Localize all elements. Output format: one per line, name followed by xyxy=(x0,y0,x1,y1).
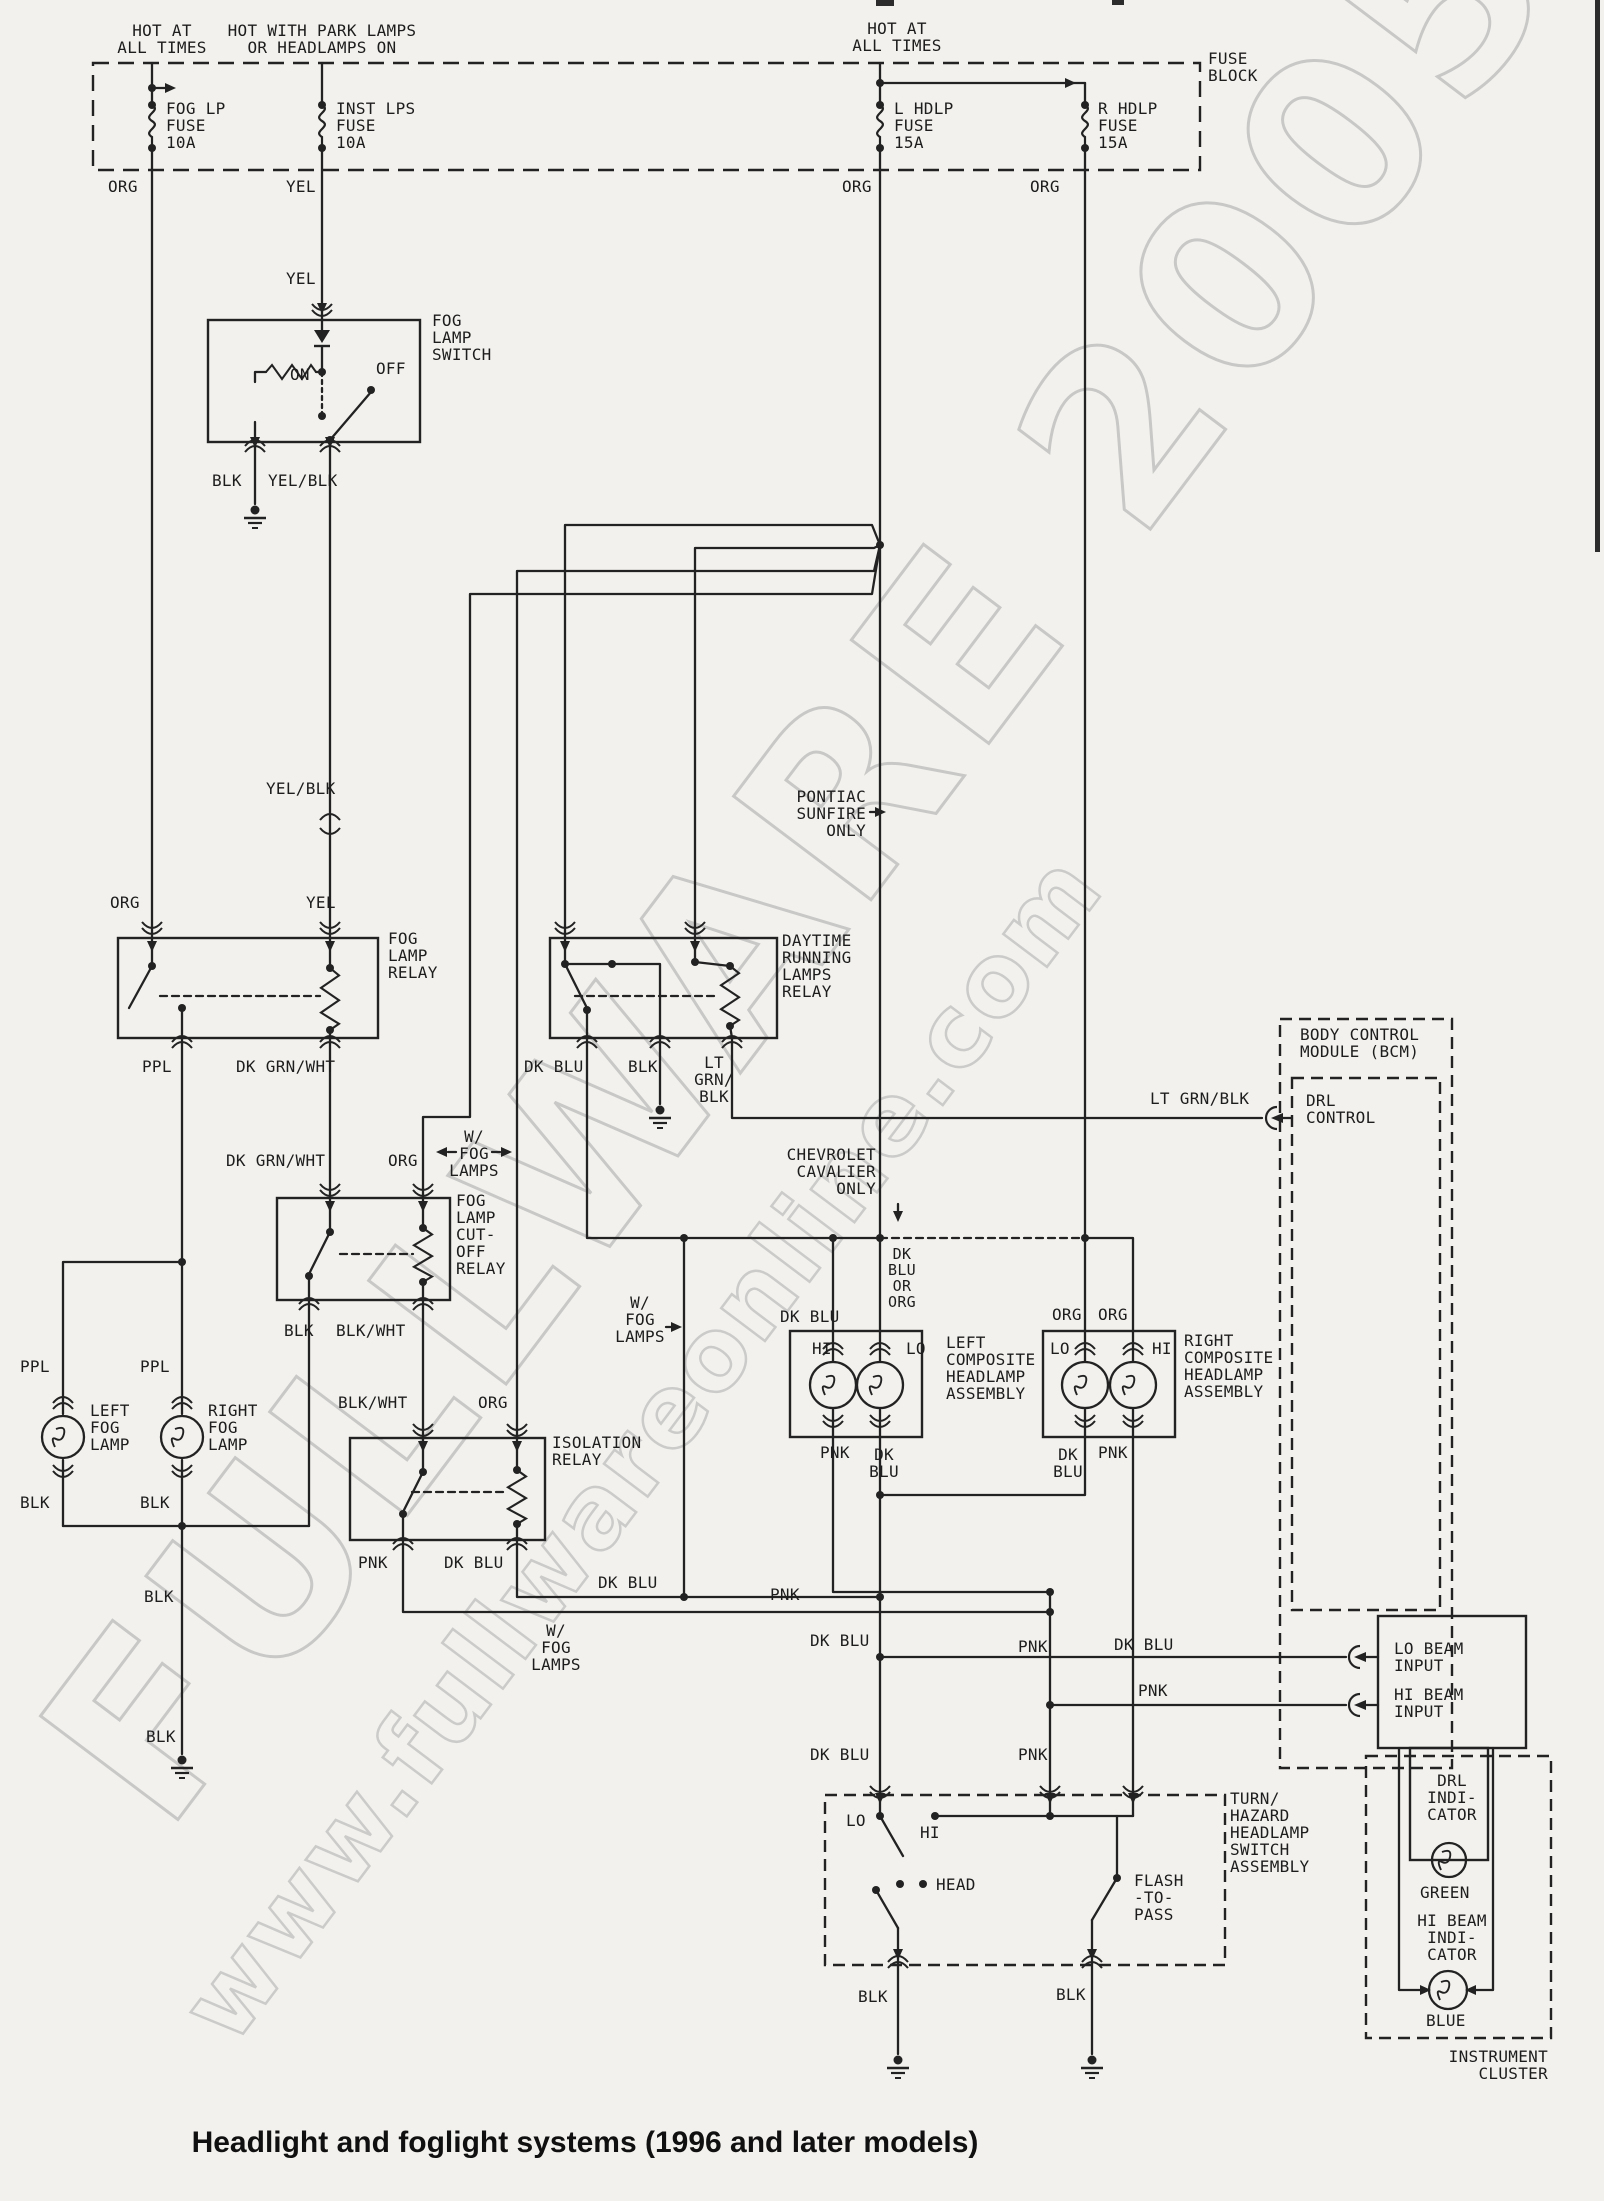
diagram-label: HI xyxy=(1152,1340,1172,1357)
diagram-label: YEL/BLK xyxy=(266,780,336,797)
diagram-label: ORG xyxy=(842,178,872,195)
junction-dot xyxy=(608,960,616,968)
diagram-label: ORG xyxy=(108,178,138,195)
diagram-label: DK BLU xyxy=(810,1746,870,1763)
arrowhead xyxy=(893,1211,903,1222)
wire xyxy=(833,1408,1050,1592)
diagram-label: LO xyxy=(1050,1340,1070,1357)
arrowhead xyxy=(690,941,700,952)
junction-dot xyxy=(1046,1588,1054,1596)
junction-dot xyxy=(876,1234,884,1242)
fuse-icon xyxy=(877,105,883,148)
junction-dot xyxy=(178,1522,186,1530)
diagram-label: BLUE xyxy=(1426,2012,1466,2029)
diagram-label: DRL INDI- CATOR xyxy=(1342,1772,1562,1823)
diagram-label: HOT AT ALL TIMES xyxy=(787,20,1007,54)
ground-icon xyxy=(656,1106,665,1115)
junction-dot xyxy=(876,79,884,87)
diagram-label: FOG LAMP RELAY xyxy=(388,930,438,981)
diagram-label: TURN/ HAZARD HEADLAMP SWITCH ASSEMBLY xyxy=(1230,1790,1309,1876)
diagram-label: HI xyxy=(812,1340,832,1357)
diagram-label: DK BLU xyxy=(780,1308,840,1325)
junction-dot xyxy=(1046,1701,1054,1709)
diagram-label: BLK xyxy=(212,472,242,489)
arrowhead xyxy=(418,1441,428,1452)
junction-dot xyxy=(876,1593,884,1601)
diagram-label: HEAD xyxy=(936,1876,976,1893)
arrowhead xyxy=(560,941,570,952)
junction-dot xyxy=(876,541,884,549)
relay-coil-icon xyxy=(414,1228,432,1282)
diagram-label: DRL CONTROL xyxy=(1306,1092,1376,1126)
ground-icon xyxy=(1088,2056,1097,2065)
wire xyxy=(695,545,880,938)
diagram-label: BLK xyxy=(144,1588,174,1605)
junction-dot xyxy=(876,1491,884,1499)
diagram-label: OFF xyxy=(376,360,406,377)
diagram-label: DK BLU xyxy=(1114,1636,1174,1653)
diagram-label: DK BLU xyxy=(444,1554,504,1571)
diagram-label: DK BLU xyxy=(524,1058,584,1075)
diagram-label: PNK xyxy=(358,1554,388,1571)
connector-icon xyxy=(1271,1113,1283,1123)
diagram-label: CHEVROLET CAVALIER ONLY xyxy=(656,1146,876,1197)
wire xyxy=(129,966,152,1008)
diagram-label: BLK xyxy=(20,1494,50,1511)
wire xyxy=(695,938,730,966)
junction-dot xyxy=(326,1228,334,1236)
junction-dot xyxy=(1113,1874,1121,1882)
diagram-label: PPL xyxy=(142,1058,172,1075)
wire xyxy=(255,372,266,382)
arrowhead xyxy=(418,1201,428,1212)
junction-dot xyxy=(583,1006,591,1014)
diagram-label: LT GRN/BLK xyxy=(1150,1090,1249,1107)
diagram-label: DAYTIME RUNNING LAMPS RELAY xyxy=(782,932,852,1000)
junction-dot xyxy=(305,1272,313,1280)
junction-dot xyxy=(148,84,156,92)
diode-icon xyxy=(314,330,330,343)
diagram-label: ORG xyxy=(478,1394,508,1411)
diagram-label: GREEN xyxy=(1420,1884,1470,1901)
diagram-label: FOG LAMP CUT- OFF RELAY xyxy=(456,1192,506,1278)
diagram-label: LO xyxy=(906,1340,926,1357)
junction-dot xyxy=(876,1653,884,1661)
diagram-label: L HDLP FUSE 15A xyxy=(894,100,954,151)
diagram-label: W/ FOG LAMPS xyxy=(530,1294,750,1345)
diagram-label: RIGHT COMPOSITE HEADLAMP ASSEMBLY xyxy=(1184,1332,1273,1400)
junction-dot xyxy=(1046,1608,1054,1616)
arrowhead xyxy=(893,1949,903,1960)
wire xyxy=(880,1816,903,1856)
diagram-label: ORG xyxy=(1030,178,1060,195)
junction-dot xyxy=(318,412,326,420)
diagram-label: LEFT FOG LAMP xyxy=(90,1402,130,1453)
diagram-label: BLK/WHT xyxy=(336,1322,406,1339)
lamp-filament-icon xyxy=(823,1376,835,1395)
wire xyxy=(1092,1878,1117,1920)
diagram-label: BLK xyxy=(140,1494,170,1511)
diagram-label: YEL/BLK xyxy=(268,472,338,489)
wire xyxy=(330,392,371,440)
wire xyxy=(565,964,587,1008)
diagram-label: ORG xyxy=(1052,1306,1082,1323)
relay-coil-icon xyxy=(321,968,339,1030)
ground-icon xyxy=(178,1756,187,1765)
lamp-filament-icon xyxy=(1438,1981,1450,2000)
relay-coil-icon xyxy=(721,966,739,1026)
junction-dot xyxy=(872,1886,880,1894)
diagram-label: LEFT COMPOSITE HEADLAMP ASSEMBLY xyxy=(946,1334,1035,1402)
fuse-icon xyxy=(1082,105,1088,148)
arrowhead xyxy=(1065,78,1076,88)
diagram-label: BLK/WHT xyxy=(338,1394,408,1411)
junction-dot xyxy=(318,368,326,376)
diagram-label: PNK xyxy=(1018,1638,1048,1655)
diagram-label: HI BEAM INDI- CATOR xyxy=(1342,1912,1562,1963)
arrowhead xyxy=(1087,1949,1097,1960)
wire xyxy=(1085,1238,1133,1362)
diagram-label: PONTIAC SUNFIRE ONLY xyxy=(646,788,866,839)
component-box xyxy=(208,320,420,442)
diagram-label: W/ FOG LAMPS xyxy=(446,1622,666,1673)
arrowhead xyxy=(325,1201,335,1212)
fuse-icon xyxy=(149,105,155,148)
junction-dot xyxy=(680,1234,688,1242)
diagram-label: BLK xyxy=(858,1988,888,2005)
diagram-label: PNK xyxy=(1138,1682,1168,1699)
diagram-label: BLK xyxy=(284,1322,314,1339)
lamp-filament-icon xyxy=(1123,1376,1135,1395)
diagram-label: ORG xyxy=(110,894,140,911)
junction-dot xyxy=(148,962,156,970)
component-box xyxy=(550,938,777,1038)
junction-dot xyxy=(919,1880,927,1888)
junction-dot xyxy=(1081,1234,1089,1242)
diagram-label: DK BLU xyxy=(598,1574,658,1591)
arrowhead xyxy=(512,1441,522,1452)
diagram-label: W/ FOG LAMPS xyxy=(364,1128,584,1179)
diagram-label: YEL xyxy=(286,270,316,287)
junction-dot xyxy=(399,1510,407,1518)
diagram-label: BLK xyxy=(146,1728,176,1745)
diagram-label: FUSE BLOCK xyxy=(1208,50,1258,84)
connector-icon xyxy=(1354,1652,1366,1662)
ground-icon xyxy=(894,2056,903,2065)
junction-dot xyxy=(178,1004,186,1012)
lamp-filament-icon xyxy=(53,1428,65,1447)
diagram-label: FOG LP FUSE 10A xyxy=(166,100,226,151)
junction-dot xyxy=(561,960,569,968)
junction-dot xyxy=(876,1812,884,1820)
junction-dot xyxy=(829,1234,837,1242)
arrowhead xyxy=(147,941,157,952)
diagram-label: YEL xyxy=(306,894,336,911)
diagram-label: PNK xyxy=(1018,1746,1048,1763)
junction-dot xyxy=(178,1258,186,1266)
component-box xyxy=(1292,1078,1440,1610)
diagram-label: FOG LAMP SWITCH xyxy=(432,312,492,363)
diagram-label: PPL xyxy=(140,1358,170,1375)
diagram-label: DK BLU xyxy=(810,1632,870,1649)
wire xyxy=(565,964,660,1038)
diagram-label: DK BLU OR ORG xyxy=(792,1246,1012,1310)
fuse-icon xyxy=(319,105,325,148)
diagram-label: RIGHT FOG LAMP xyxy=(208,1402,258,1453)
junction-dot xyxy=(931,1812,939,1820)
lamp-filament-icon xyxy=(1075,1376,1087,1395)
junction-dot xyxy=(691,958,699,966)
diagram-caption: Headlight and foglight systems (1996 and… xyxy=(185,2126,985,2160)
diagram-label: LO xyxy=(846,1812,866,1829)
lamp-filament-icon xyxy=(172,1428,184,1447)
scan-artifact xyxy=(1112,0,1124,5)
arrowhead xyxy=(165,83,176,93)
diagram-label: DK GRN/WHT xyxy=(236,1058,335,1075)
diagram-label: DK BLU xyxy=(958,1446,1178,1480)
diagram-label: BODY CONTROL MODULE (BCM) xyxy=(1300,1026,1419,1060)
diagram-label: R HDLP FUSE 15A xyxy=(1098,100,1158,151)
diagram-page: FULLWARE 2005 www.fullwareonline.com HOT… xyxy=(0,0,1604,2201)
diagram-label: INSTRUMENT CLUSTER xyxy=(1328,2048,1548,2082)
diagram-label: HI xyxy=(920,1824,940,1841)
lamp-filament-icon xyxy=(870,1376,882,1395)
scan-artifact xyxy=(876,0,894,6)
junction-dot xyxy=(896,1880,904,1888)
component-box xyxy=(93,63,1200,170)
junction-dot xyxy=(680,1593,688,1601)
diagram-label: PNK xyxy=(1098,1444,1128,1461)
diagram-label: PPL xyxy=(20,1358,50,1375)
wire xyxy=(876,1890,898,1928)
relay-coil-icon xyxy=(508,1470,526,1524)
diagram-label: ON xyxy=(290,366,310,383)
junction-dot xyxy=(419,1468,427,1476)
junction-dot xyxy=(1046,1812,1054,1820)
diagram-label: YEL xyxy=(286,178,316,195)
wire xyxy=(517,1524,880,1597)
diagram-label: DK GRN/WHT xyxy=(226,1152,325,1169)
diagram-label: FLASH -TO- PASS xyxy=(1134,1872,1184,1923)
diagram-label: PNK xyxy=(770,1586,800,1603)
diagram-label: ISOLATION RELAY xyxy=(552,1434,641,1468)
diagram-label: HOT WITH PARK LAMPS OR HEADLAMPS ON xyxy=(212,22,432,56)
wire xyxy=(63,1262,182,1414)
junction-dot xyxy=(367,386,375,394)
diagram-label: BLK xyxy=(1056,1986,1086,2003)
wire xyxy=(309,1232,330,1274)
diagram-label: ORG xyxy=(1098,1306,1128,1323)
diagram-label: LO BEAM INPUT xyxy=(1394,1640,1464,1674)
scan-artifact xyxy=(1595,0,1600,552)
arrowhead xyxy=(325,941,335,952)
wire xyxy=(565,525,880,938)
connector-icon xyxy=(1354,1700,1366,1710)
diagram-label: HI BEAM INPUT xyxy=(1394,1686,1464,1720)
diagram-label: INST LPS FUSE 10A xyxy=(336,100,415,151)
ground-icon xyxy=(251,506,260,515)
diagram-label: LT GRN/ BLK xyxy=(604,1054,824,1105)
